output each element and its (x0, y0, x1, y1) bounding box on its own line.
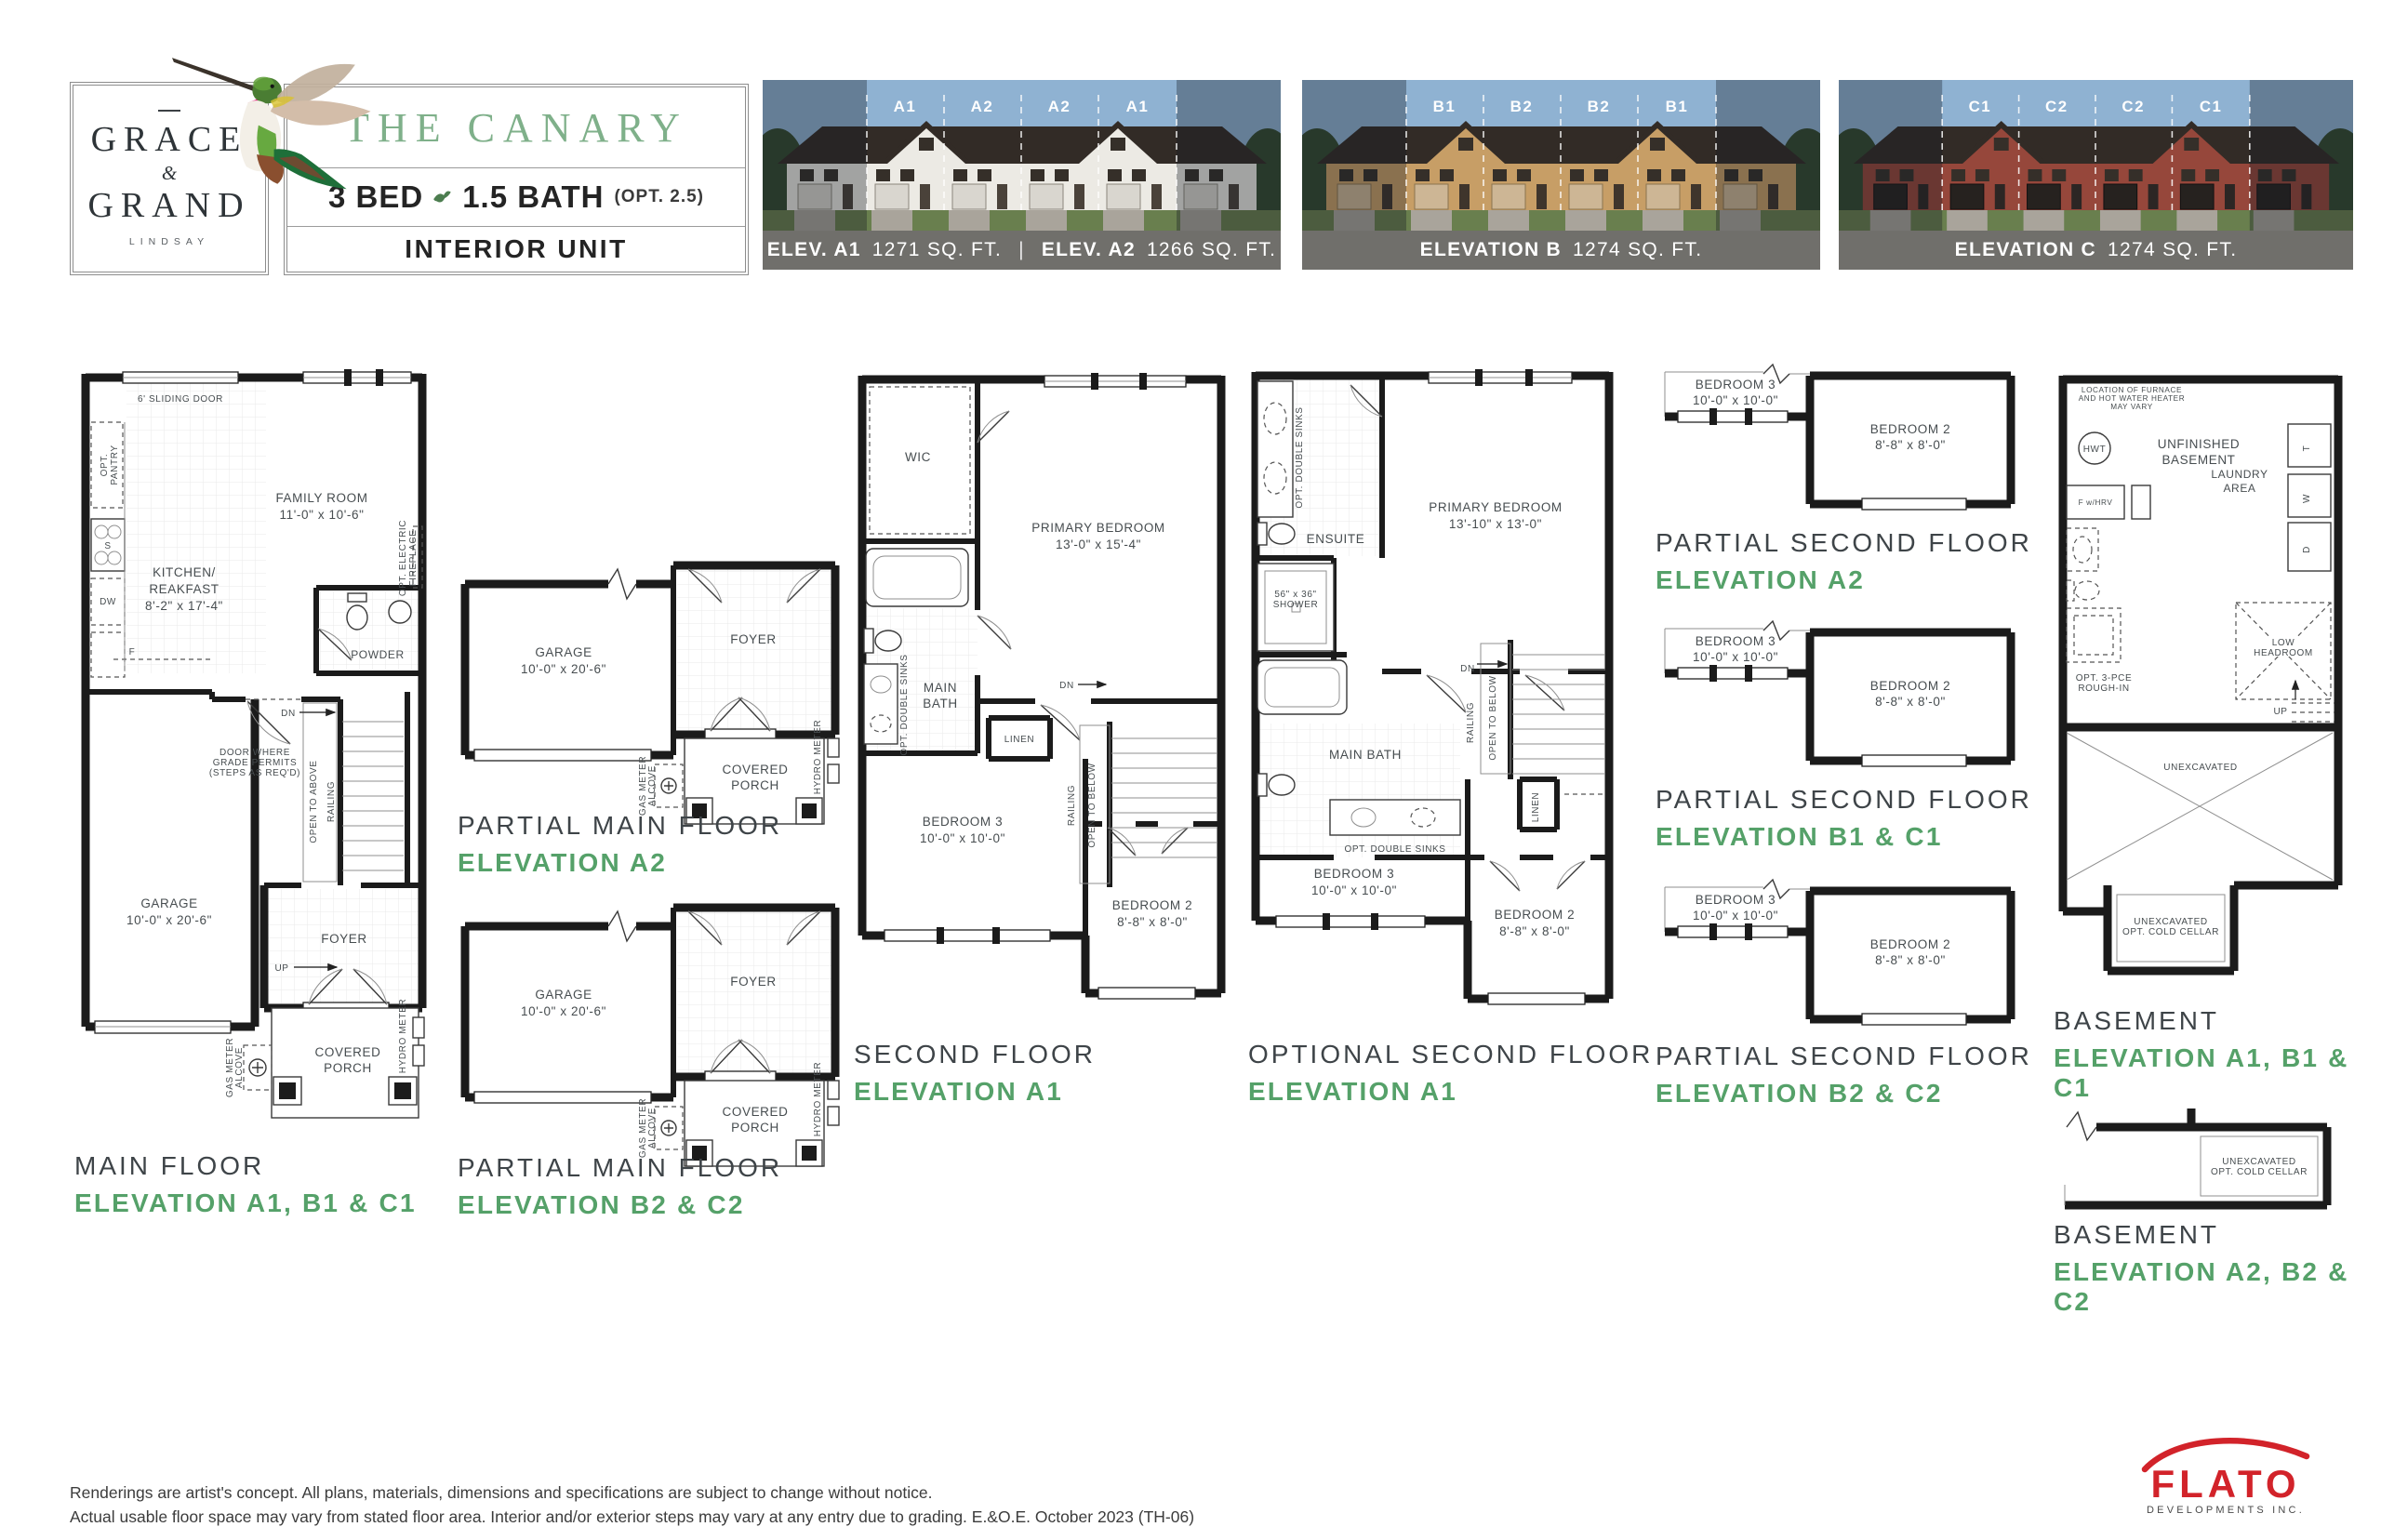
elevation-a-image: A1 A2 A2 A1 (763, 80, 1281, 231)
caption-optional-second-floor: OPTIONAL SECOND FLOOR ELEVATION A1 (1248, 1040, 1653, 1107)
elevation-b-image: B1 B2 B2 B1 (1302, 80, 1820, 231)
caption-partial-main-b2c2: PARTIAL MAIN FLOOR ELEVATION B2 & C2 (458, 1153, 782, 1220)
label-garage: GARAGE10'-0" x 20'-6" (521, 988, 606, 1018)
elevation-a-caption: ELEV. A1 1271 SQ. FT. | ELEV. A2 1266 SQ… (763, 231, 1281, 270)
label-bedroom2: BEDROOM 28'-8" x 8'-0" (1870, 422, 1950, 452)
caption-label: ELEVATION C (1955, 239, 2096, 261)
label-dn: DN (281, 709, 296, 719)
label-shower: 56" x 36"SHOWER (1273, 590, 1319, 610)
unit-label: B2 (1510, 98, 1534, 115)
label-linen: LINEN (1531, 792, 1541, 822)
plan-optional-second-floor: OPT. DOUBLE SINKS ENSUITE 56" x 36"SHOWE… (1244, 365, 1616, 1020)
label-ensuite: ENSUITE (1307, 532, 1365, 546)
label-bedroom3: BEDROOM 310'-0" x 10'-0" (1693, 893, 1778, 923)
elevation-b-rendering: B1 B2 B2 B1 ELEVATION B 1274 SQ. FT. (1302, 80, 1820, 270)
elevation-a-rendering: A1 A2 A2 A1 ELEV. A1 1271 SQ. FT. | ELEV… (763, 80, 1281, 270)
label-gas-meter: GAS METERALCOVE (638, 756, 658, 816)
label-f-hrv: F w/HRV (2079, 498, 2113, 507)
label-bedroom2: BEDROOM 28'-8" x 8'-0" (1870, 679, 1950, 709)
plan-partial-main-b2c2: GARAGE10'-0" x 20'-6" FOYER COVEREDPORCH… (454, 900, 845, 1161)
unit-label: C2 (2045, 98, 2068, 115)
label-fireplace: OPT. ELECTRICFIREPLACE (398, 520, 419, 596)
small-bird-icon (432, 188, 454, 206)
plan-partial-main-a2: GARAGE10'-0" x 20'-6" FOYER COVEREDPORCH… (454, 558, 845, 818)
disclaimer-line-1: Renderings are artist's concept. All pla… (70, 1480, 1194, 1505)
elevation-c-image: C1 C2 C2 C1 (1839, 80, 2353, 231)
elevation-c-rendering: C1 C2 C2 C1 ELEVATION C 1274 SQ. FT. (1839, 80, 2353, 270)
caption-label: ELEVATION B (1420, 239, 1562, 261)
unit-label: C1 (1969, 98, 1992, 115)
caption-area: 1271 SQ. FT. (872, 239, 1002, 261)
label-gas-meter: GAS METERALCOVE (638, 1098, 658, 1158)
unit-label: A1 (894, 98, 917, 115)
label-cold-cellar: UNEXCAVATEDOPT. COLD CELLAR (2122, 917, 2219, 937)
unit-type: INTERIOR UNIT (287, 227, 745, 272)
label-dishwasher: DW (100, 597, 116, 607)
unit-label: B1 (1666, 98, 1689, 115)
plan-partial-second-a2: BEDROOM 310'-0" x 10'-0" BEDROOM 28'-8" … (1654, 363, 2026, 525)
label-laundry-tub: T (2302, 445, 2312, 452)
flato-wordmark: FLATO (2150, 1462, 2300, 1506)
label-linen: LINEN (1004, 735, 1034, 745)
label-open-above: OPEN TO ABOVE (309, 760, 319, 843)
spec-opt: (OPT. 2.5) (614, 187, 704, 207)
label-hydro-meter: HYDRO METER (813, 720, 823, 795)
label-rough-in: OPT. 3-PCEROUGH-IN (2076, 673, 2132, 694)
label-bedroom2: BEDROOM 28'-8" x 8'-0" (1870, 937, 1950, 967)
label-up: UP (2273, 707, 2287, 717)
label-opt-double-sinks: OPT. DOUBLE SINKS (1295, 406, 1305, 508)
caption-area: 1274 SQ. FT. (2108, 239, 2237, 261)
basement2-labels: UNEXCAVATEDOPT. COLD CELLAR (2211, 1157, 2308, 1177)
label-bedroom3: BEDROOM 310'-0" x 10'-0" (1693, 634, 1778, 664)
label-fridge: F (129, 647, 136, 657)
caption-partial-second-a2: PARTIAL SECOND FLOOR ELEVATION A2 (1656, 528, 2032, 595)
main-floor-walls (86, 369, 422, 1033)
unit-label: C1 (2200, 98, 2223, 115)
caption-area: 1266 SQ. FT. (1147, 239, 1276, 261)
caption-label: ELEV. A2 (1042, 239, 1136, 261)
label-opt-double-sinks-2: OPT. DOUBLE SINKS (1344, 844, 1445, 855)
label-foyer: FOYER (730, 975, 777, 989)
label-grade-door: DOOR WHEREGRADE PERMITS(STEPS AS REQ'D) (209, 748, 300, 778)
spec-bath: 1.5 BATH (462, 179, 604, 215)
caption-partial-second-b1c1: PARTIAL SECOND FLOOR ELEVATION B1 & C1 (1656, 785, 2032, 852)
label-hydro-meter: HYDRO METER (813, 1062, 823, 1137)
label-foyer: FOYER (730, 632, 777, 646)
plan-main-floor: 6' SLIDING DOOR OPT.PANTRY FAMILY ROOM11… (73, 365, 435, 1135)
elevation-b-caption: ELEVATION B 1274 SQ. FT. (1302, 231, 1820, 270)
disclaimer: Renderings are artist's concept. All pla… (70, 1480, 1194, 1529)
label-family-room: FAMILY ROOM11'-0" x 10'-6" (275, 491, 367, 522)
label-main-bath: MAIN BATH (1329, 748, 1402, 762)
label-sliding-door: 6' SLIDING DOOR (138, 394, 223, 405)
label-unexcavated: UNEXCAVATED (2163, 763, 2237, 773)
flato-logo: FLATO DEVELOPMENTS INC. (2137, 1430, 2314, 1518)
label-foyer: FOYER (321, 932, 367, 946)
label-furnace-note: LOCATION OF FURNACEAND HOT WATER HEATERM… (2079, 386, 2186, 411)
label-dn: DN (1059, 681, 1074, 691)
label-wic: WIC (905, 450, 931, 464)
caption-partial-second-b2c2: PARTIAL SECOND FLOOR ELEVATION B2 & C2 (1656, 1042, 2032, 1109)
label-up: UP (274, 963, 288, 974)
disclaimer-line-2: Actual usable floor space may vary from … (70, 1505, 1194, 1529)
label-dryer: D (2302, 546, 2312, 553)
plan-basement-a1b1c1: LOCATION OF FURNACEAND HOT WATER HEATERM… (2052, 368, 2349, 996)
unit-label: B2 (1588, 98, 1611, 115)
label-bedroom3: BEDROOM 310'-0" x 10'-0" (1311, 867, 1397, 897)
logo-city: LINDSAY (129, 236, 209, 247)
label-open-below: OPEN TO BELOW (1087, 763, 1097, 847)
label-opt-pantry: OPT.PANTRY (100, 445, 120, 485)
unit-label: A2 (971, 98, 994, 115)
caption-partial-main-a2: PARTIAL MAIN FLOOR ELEVATION A2 (458, 811, 782, 878)
caption-basement-a2b2c2: BASEMENT ELEVATION A2, B2 & C2 (2054, 1220, 2381, 1317)
label-primary-bedroom: PRIMARY BEDROOM13'-10" x 13'-0" (1429, 500, 1563, 531)
flato-sub: DEVELOPMENTS INC. (2147, 1505, 2305, 1516)
label-gas-meter: GAS METERALCOVE (225, 1038, 245, 1097)
unit-label: A2 (1048, 98, 1071, 115)
label-primary-bedroom: PRIMARY BEDROOM13'-0" x 15'-4" (1031, 521, 1165, 551)
unit-label: C2 (2122, 98, 2145, 115)
label-bedroom3: BEDROOM 310'-0" x 10'-0" (1693, 378, 1778, 407)
label-hydro-meter: HYDRO METER (398, 999, 408, 1074)
caption-second-floor: SECOND FLOOR ELEVATION A1 (854, 1040, 1096, 1107)
label-railing: RAILING (1466, 702, 1476, 743)
plan-basement-a2b2c2: UNEXCAVATEDOPT. COLD CELLAR (2052, 1095, 2349, 1221)
brochure-sheet: GRACE & GRAND LINDSAY THE CANARY 3 BED 1… (0, 0, 2381, 1540)
unit-label: A1 (1126, 98, 1150, 115)
label-railing: RAILING (326, 781, 337, 822)
caption-divider: | (1018, 239, 1025, 261)
plan-partial-second-b2c2: BEDROOM 310'-0" x 10'-0" BEDROOM 28'-8" … (1654, 878, 2026, 1041)
label-powder: POWDER (351, 648, 405, 661)
label-dn: DN (1460, 664, 1475, 674)
hummingbird-icon (156, 11, 393, 192)
plan-partial-second-b1c1: BEDROOM 310'-0" x 10'-0" BEDROOM 28'-8" … (1654, 619, 2026, 782)
label-opt-double-sinks: OPT. DOUBLE SINKS (899, 654, 910, 755)
label-hwt: HWT (2083, 445, 2107, 455)
label-open-below: OPEN TO BELOW (1488, 675, 1498, 760)
elevation-c-caption: ELEVATION C 1274 SQ. FT. (1839, 231, 2353, 270)
label-stove: S (104, 541, 111, 551)
label-garage: GARAGE10'-0" x 20'-6" (521, 645, 606, 676)
plan-second-floor: WIC PRIMARY BEDROOM13'-0" x 15'-4" OPT. … (851, 368, 1232, 1015)
label-bedroom2: BEDROOM 28'-8" x 8'-0" (1112, 898, 1192, 929)
label-garage: GARAGE10'-0" x 20'-6" (126, 896, 212, 927)
label-cold-cellar: UNEXCAVATEDOPT. COLD CELLAR (2211, 1157, 2308, 1177)
label-bedroom3: BEDROOM 310'-0" x 10'-0" (920, 815, 1005, 845)
label-washer: W (2302, 494, 2312, 503)
caption-main-floor: MAIN FLOOR ELEVATION A1, B1 & C1 (74, 1151, 417, 1218)
caption-label: ELEV. A1 (767, 239, 861, 261)
label-railing: RAILING (1067, 785, 1077, 826)
caption-basement-a1b1c1: BASEMENT ELEVATION A1, B1 & C1 (2054, 1006, 2381, 1103)
caption-area: 1274 SQ. FT. (1573, 239, 1702, 261)
label-bedroom2: BEDROOM 28'-8" x 8'-0" (1495, 908, 1575, 938)
label-laundry-area: LAUNDRYAREA (2211, 468, 2268, 495)
unit-label: B1 (1433, 98, 1457, 115)
label-unfinished-basement: UNFINISHEDBASEMENT (2158, 437, 2241, 467)
label-kitchen: KITCHEN/REAKFAST8'-2" x 17'-4" (145, 565, 223, 613)
